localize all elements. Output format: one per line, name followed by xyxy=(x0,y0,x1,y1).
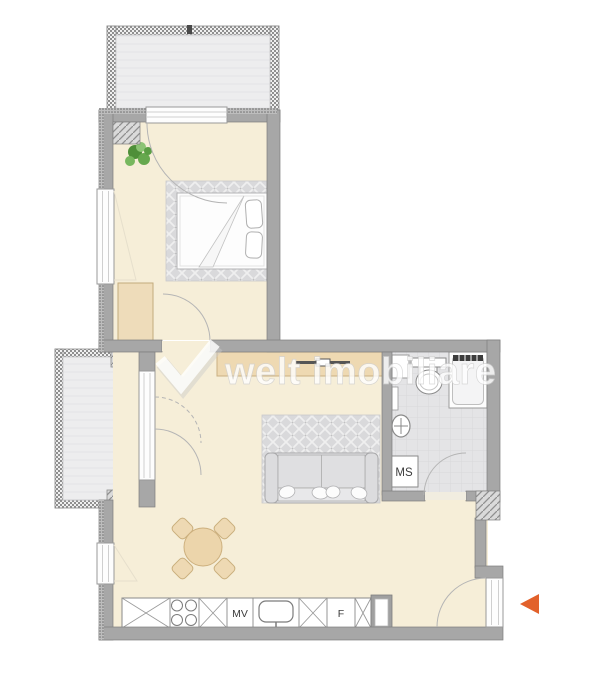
pillar-hatched xyxy=(476,491,500,520)
wall-bottom xyxy=(99,627,503,640)
balcony-top-railing-left xyxy=(107,26,116,118)
floor-plan-canvas: MV F xyxy=(0,0,606,700)
pillow xyxy=(245,199,263,228)
pillar-hatched xyxy=(113,122,140,144)
wardrobe-icon xyxy=(118,283,153,345)
wall xyxy=(382,491,425,501)
sofa-armrest xyxy=(265,453,278,503)
washbasin-icon xyxy=(392,415,410,437)
fridge-label: F xyxy=(338,608,344,620)
balcony-left-railing-side xyxy=(55,349,63,508)
wall xyxy=(139,352,155,372)
pillow xyxy=(245,232,262,259)
sofa-icon xyxy=(265,453,378,503)
wall xyxy=(475,518,486,568)
dining-table-icon xyxy=(184,528,222,566)
railing-divider xyxy=(187,25,192,34)
washing-machine-label: MS xyxy=(395,467,413,479)
bed-icon xyxy=(177,193,267,269)
balcony-top xyxy=(107,25,279,118)
bathroom-door-opening xyxy=(425,492,466,500)
floor-plan: MV F xyxy=(0,0,606,700)
watermark-text: welt imobiliare xyxy=(224,351,496,393)
wall xyxy=(99,340,162,352)
washing-machine-icon: MS xyxy=(390,456,418,487)
balcony-door-left-icon xyxy=(139,371,155,480)
balcony-door-top-icon xyxy=(146,107,227,123)
entrance-door-icon xyxy=(486,578,503,627)
balcony-top-floor xyxy=(116,35,270,118)
wall xyxy=(139,479,155,507)
wall-entrance-stub xyxy=(475,566,503,578)
tall-unit-icon xyxy=(371,595,392,630)
kitchen: MV F xyxy=(122,595,392,630)
balcony-top-railing xyxy=(107,26,279,35)
balcony-top-railing-right xyxy=(270,26,279,118)
dishwasher-label: MV xyxy=(232,608,248,620)
wall-bedroom-right xyxy=(267,110,280,352)
